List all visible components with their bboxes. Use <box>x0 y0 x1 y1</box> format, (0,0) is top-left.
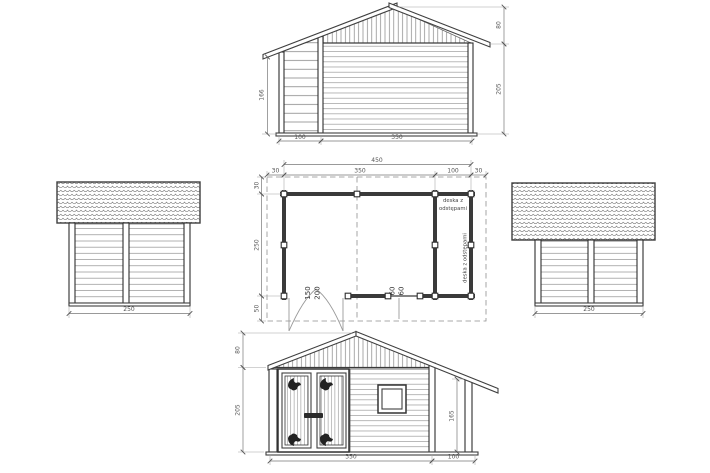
dim-label-plan-depth: 250 <box>254 239 261 251</box>
left-post-1 <box>69 223 75 305</box>
right-post-3 <box>637 240 643 305</box>
dim-label-front-wall-height: 205 <box>235 404 242 416</box>
rear-post-right <box>468 43 473 133</box>
dim-label-rear-wall-height: 205 <box>496 83 503 95</box>
dim-label-right-width: 250 <box>583 306 595 313</box>
dim-left-bottom: 250 <box>69 306 190 318</box>
right-elevation: 250 <box>512 183 655 318</box>
porch-note-vertical: deska z odstępami <box>463 233 469 283</box>
rear-elevation: 166 80 205 100 350 <box>259 3 510 145</box>
right-roof <box>512 183 655 240</box>
plan-double-door: 150 200 <box>289 286 343 331</box>
front-gable <box>271 334 440 368</box>
front-post-mid <box>429 363 435 452</box>
dim-label-front-main-width: 350 <box>345 454 357 461</box>
dim-label-door-2: 200 <box>314 286 322 299</box>
dim-label-plan-oh-right: 30 <box>475 168 483 175</box>
dim-label-plan-porch: 100 <box>447 168 459 175</box>
dim-label-plan-oh-top: 30 <box>254 182 261 190</box>
dim-label-window-2: 60 <box>398 287 406 296</box>
front-window <box>378 385 406 413</box>
front-porch-post <box>465 379 472 452</box>
dim-label-rear-porch-height: 166 <box>259 89 266 101</box>
dim-label-front-porch-width: 100 <box>448 454 460 461</box>
left-wall-panel-2 <box>129 224 184 303</box>
left-roof <box>57 182 200 223</box>
window-pane <box>382 389 402 409</box>
dim-label-plan-oh-left: 30 <box>272 168 280 175</box>
dim-label-front-roof-height: 80 <box>235 346 242 354</box>
dim-label-plan-main: 350 <box>354 168 366 175</box>
right-wall-panel-1 <box>541 241 588 303</box>
right-post-1 <box>535 240 541 305</box>
dim-right-bottom: 250 <box>535 306 643 318</box>
dim-front-porch-height: 165 <box>449 379 465 452</box>
dim-rear-left: 166 <box>259 57 277 134</box>
floor-plan: 150 200 60 60 deska z odstępami deska z … <box>254 157 487 331</box>
plan-porch-notes: deska z odstępami deska z odstępami <box>439 198 468 283</box>
front-elevation: 80 205 165 350 100 <box>235 332 499 466</box>
right-post-2 <box>588 240 594 305</box>
dim-label-window-1: 60 <box>389 287 397 296</box>
blueprint-canvas: 166 80 205 100 350 <box>0 0 710 473</box>
dim-label-rear-porch-width: 100 <box>294 134 306 141</box>
door-handle <box>304 413 323 418</box>
plan-window-dims: 60 60 <box>389 287 406 319</box>
blueprint-page: 166 80 205 100 350 <box>0 0 710 473</box>
rear-porch-wall <box>281 37 320 133</box>
right-wall-panel-2 <box>594 241 637 303</box>
rear-main-wall <box>320 43 471 133</box>
dim-label-plan-oh-bottom: 50 <box>254 305 261 313</box>
rear-base <box>276 133 477 136</box>
dim-label-front-porch-height: 165 <box>449 410 456 422</box>
dim-label-left-width: 250 <box>123 306 135 313</box>
dim-plan-top: 450 30 350 100 30 <box>267 157 486 191</box>
dim-label-rear-roof-height: 80 <box>496 21 503 29</box>
dim-label-door-1: 150 <box>304 286 312 299</box>
left-wall-panel-1 <box>75 224 123 303</box>
rear-post-mid <box>318 37 323 134</box>
porch-note-line2: odstępami <box>439 206 467 212</box>
porch-note-line1: deska z <box>443 198 463 204</box>
left-elevation: 250 <box>57 182 200 318</box>
dim-label-rear-main-width: 350 <box>391 134 403 141</box>
front-double-door <box>278 369 349 452</box>
dim-label-plan-total: 450 <box>371 157 383 164</box>
rear-post-left <box>279 52 284 133</box>
left-post-3 <box>184 223 190 305</box>
front-post-left <box>269 369 277 452</box>
left-post-2 <box>123 223 129 305</box>
